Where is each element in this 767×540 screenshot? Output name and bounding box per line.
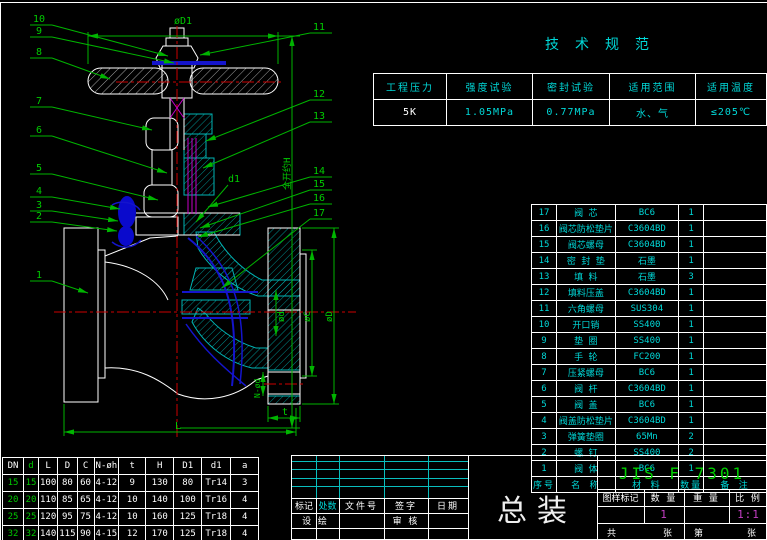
- info-header-mark: 图样标记: [597, 489, 644, 506]
- info-header-qty: 数 量: [644, 489, 684, 506]
- table-cell: 阀芯防松垫片: [557, 221, 616, 237]
- table-cell: [704, 349, 767, 365]
- table-cell: H: [146, 458, 174, 475]
- svg-text:5: 5: [36, 163, 42, 174]
- table-cell: 4: [231, 509, 259, 526]
- svg-text:11: 11: [313, 22, 325, 33]
- table-cell: 填 料: [557, 269, 616, 285]
- table-cell: a: [231, 458, 259, 475]
- sheet-total-label: 共: [607, 526, 618, 539]
- table-cell: 15: [532, 237, 557, 253]
- table-cell: 25: [24, 509, 39, 526]
- table-cell: 170: [146, 526, 174, 540]
- table-row: 6阀 杆C3604BD1: [532, 381, 767, 397]
- callout-5: 5: [30, 163, 158, 200]
- table-cell: 140: [146, 492, 174, 509]
- table-row: 202011085654-1210140100Tr164: [3, 492, 259, 509]
- table-cell: 60: [77, 475, 94, 492]
- table-row: 17阀 芯BC61: [532, 205, 767, 221]
- table-cell: 115: [58, 526, 77, 540]
- table-cell: 阀芯螺母: [557, 237, 616, 253]
- dim-label-D: øD: [325, 311, 335, 322]
- dimension-table: DNdLDCN-øhtHD1d1a 151510080604-12913080T…: [2, 457, 259, 540]
- table-cell: 90: [77, 526, 94, 540]
- table-cell: 1: [679, 381, 704, 397]
- table-cell: 密 封 垫: [557, 253, 616, 269]
- table-cell: 开口销: [557, 317, 616, 333]
- table-cell: 20: [3, 492, 24, 509]
- table-cell: 垫 圈: [557, 333, 616, 349]
- table-cell: 5: [532, 397, 557, 413]
- table-row: 14密 封 垫石墨1: [532, 253, 767, 269]
- sign-header-mark: 标记: [292, 498, 316, 513]
- table-cell: 0.77MPa: [533, 100, 610, 126]
- table-cell: 4: [532, 413, 557, 429]
- table-cell: C3604BD: [615, 237, 678, 253]
- table-cell: BC6: [615, 397, 678, 413]
- svg-text:4: 4: [36, 186, 42, 197]
- table-cell: 17: [532, 205, 557, 221]
- table-cell: 1.05MPa: [447, 100, 533, 126]
- table-row: DNdLDCN-øhtHD1d1a: [3, 458, 259, 475]
- table-cell: ≤205℃: [696, 100, 767, 126]
- table-cell: 阀盖防松垫片: [557, 413, 616, 429]
- dim-label-d: ød: [277, 311, 287, 322]
- table-cell: [704, 237, 767, 253]
- table-cell: [704, 429, 767, 445]
- table-row: 252512095754-1210160125Tr184: [3, 509, 259, 526]
- table-cell: 弹簧垫圈: [557, 429, 616, 445]
- table-cell: C3604BD: [615, 285, 678, 301]
- table-cell: 110: [39, 492, 58, 509]
- table-cell: 1: [679, 317, 704, 333]
- table-row: 12填料压盖C3604BD1: [532, 285, 767, 301]
- table-cell: 10: [119, 492, 146, 509]
- table-row: 5K1.05MPa0.77MPa水、气≤205℃: [374, 100, 767, 126]
- table-cell: Tr16: [202, 492, 231, 509]
- sheet-number-unit: 张: [747, 526, 758, 539]
- table-cell: SUS304: [615, 301, 678, 317]
- table-cell: 填料压盖: [557, 285, 616, 301]
- table-cell: 石墨: [615, 253, 678, 269]
- sign-header-date: 日期: [428, 498, 468, 513]
- table-cell: BC6: [615, 365, 678, 381]
- table-cell: 15: [3, 475, 24, 492]
- parts-list-table: 17阀 芯BC6116阀芯防松垫片C3604BD115阀芯螺母C3604BD11…: [531, 204, 767, 493]
- table-cell: 125: [174, 526, 202, 540]
- table-cell: [704, 397, 767, 413]
- table-cell: 4: [231, 526, 259, 540]
- dim-label-t: t: [282, 407, 288, 418]
- table-cell: 4: [231, 492, 259, 509]
- table-cell: C3604BD: [615, 413, 678, 429]
- table-cell: d: [24, 458, 39, 475]
- table-row: 13填 料石墨3: [532, 269, 767, 285]
- table-cell: D1: [174, 458, 202, 475]
- table-cell: 1: [679, 349, 704, 365]
- callout-11: 11: [200, 22, 332, 55]
- table-cell: 压紧螺母: [557, 365, 616, 381]
- svg-text:14: 14: [313, 166, 325, 177]
- svg-text:6: 6: [36, 125, 42, 136]
- drawing-title: 总装: [468, 484, 596, 532]
- table-cell: 140: [39, 526, 58, 540]
- table-cell: 阀 杆: [557, 381, 616, 397]
- svg-text:16: 16: [313, 193, 325, 204]
- table-cell: 六角螺母: [557, 301, 616, 317]
- sheet-total-cell: 共 张: [597, 523, 684, 540]
- table-row: 16阀芯防松垫片C3604BD1: [532, 221, 767, 237]
- callout-3: 3: [30, 200, 118, 221]
- svg-text:2: 2: [36, 211, 42, 222]
- table-cell: C3604BD: [615, 381, 678, 397]
- table-cell: [704, 253, 767, 269]
- callout-10: 10: [30, 14, 168, 56]
- table-cell: 32: [24, 526, 39, 540]
- table-cell: 120: [39, 509, 58, 526]
- table-cell: 16: [532, 221, 557, 237]
- table-cell: 1: [679, 221, 704, 237]
- table-cell: 75: [77, 509, 94, 526]
- table-cell: 1: [679, 253, 704, 269]
- sheet-total-unit: 张: [663, 526, 674, 539]
- table-cell: 4-15: [94, 526, 119, 540]
- table-cell: FC200: [615, 349, 678, 365]
- table-row: 11六角螺母SUS3041: [532, 301, 767, 317]
- svg-text:15: 15: [313, 179, 325, 190]
- table-cell: [704, 221, 767, 237]
- table-cell: 2: [679, 429, 704, 445]
- table-cell: 3: [679, 269, 704, 285]
- table-cell: 1: [679, 333, 704, 349]
- table-cell: 3: [532, 429, 557, 445]
- svg-text:10: 10: [33, 14, 45, 25]
- table-cell: 160: [146, 509, 174, 526]
- table-row: 151510080604-12913080Tr143: [3, 475, 259, 492]
- table-cell: 阀 盖: [557, 397, 616, 413]
- table-cell: [704, 269, 767, 285]
- table-row: 15阀芯螺母C3604BD1: [532, 237, 767, 253]
- table-cell: 10: [119, 509, 146, 526]
- table-cell: d1: [202, 458, 231, 475]
- table-cell: [704, 205, 767, 221]
- table-cell: BC6: [615, 205, 678, 221]
- table-cell: 15: [24, 475, 39, 492]
- table-cell: 12: [532, 285, 557, 301]
- table-cell: 11: [532, 301, 557, 317]
- svg-text:8: 8: [36, 47, 42, 58]
- table-cell: L: [39, 458, 58, 475]
- table-row: 工程压力强度试验密封试验适用范围适用温度: [374, 74, 767, 100]
- table-cell: 工程压力: [374, 74, 447, 100]
- callout-9: 9: [30, 26, 174, 63]
- svg-text:12: 12: [313, 89, 325, 100]
- table-row: 9垫 圈SS4001: [532, 333, 767, 349]
- check-label: 审 核: [384, 513, 428, 528]
- svg-text:3: 3: [36, 200, 42, 211]
- table-cell: 65: [77, 492, 94, 509]
- table-cell: 32: [3, 526, 24, 540]
- info-header-weight: 重 量: [684, 489, 729, 506]
- table-cell: 1: [679, 413, 704, 429]
- table-cell: 100: [174, 492, 202, 509]
- table-cell: [704, 333, 767, 349]
- svg-text:7: 7: [36, 96, 42, 107]
- dim-label-L: L: [175, 421, 181, 432]
- table-cell: 适用温度: [696, 74, 767, 100]
- table-row: 4阀盖防松垫片C3604BD1: [532, 413, 767, 429]
- table-cell: 65Mn: [615, 429, 678, 445]
- table-cell: 80: [58, 475, 77, 492]
- table-cell: 14: [532, 253, 557, 269]
- table-cell: t: [119, 458, 146, 475]
- table-cell: 25: [3, 509, 24, 526]
- table-cell: 3: [231, 475, 259, 492]
- table-cell: 1: [679, 397, 704, 413]
- table-cell: Tr18: [202, 526, 231, 540]
- table-cell: C3604BD: [615, 221, 678, 237]
- svg-text:1: 1: [36, 270, 42, 281]
- table-row: 3232140115904-1512170125Tr184: [3, 526, 259, 540]
- table-cell: N-øh: [94, 458, 119, 475]
- callout-13: 13: [203, 111, 332, 168]
- svg-text:13: 13: [313, 111, 325, 122]
- dim-label-d1: d1: [228, 174, 240, 185]
- info-header-scale: 比 例: [729, 489, 767, 506]
- table-cell: 20: [24, 492, 39, 509]
- table-cell: 7: [532, 365, 557, 381]
- sign-header-count: 处数: [316, 498, 339, 513]
- svg-text:9: 9: [36, 26, 42, 37]
- table-cell: [704, 285, 767, 301]
- table-row: 8手 轮FC2001: [532, 349, 767, 365]
- table-cell: 12: [119, 526, 146, 540]
- table-cell: 1: [679, 365, 704, 381]
- dim-label-D1: øD1: [174, 16, 192, 27]
- table-cell: 9: [119, 475, 146, 492]
- table-cell: 1: [679, 237, 704, 253]
- table-cell: [704, 381, 767, 397]
- table-cell: [704, 365, 767, 381]
- tech-spec-title: 技术规范: [455, 34, 755, 54]
- callout-1: 1: [30, 270, 88, 293]
- table-cell: 95: [58, 509, 77, 526]
- table-row: 10开口销SS4001: [532, 317, 767, 333]
- table-cell: 85: [58, 492, 77, 509]
- table-cell: 80: [174, 475, 202, 492]
- table-cell: 密封试验: [533, 74, 610, 100]
- table-cell: DN: [3, 458, 24, 475]
- table-cell: 手 轮: [557, 349, 616, 365]
- tech-spec-table: 工程压力强度试验密封试验适用范围适用温度5K1.05MPa0.77MPa水、气≤…: [373, 73, 767, 126]
- table-cell: 4-12: [94, 509, 119, 526]
- design-label: 设 绘: [292, 513, 339, 528]
- valve-assembly-drawing: øD1 全开约H d1 L ød øC øD: [0, 0, 370, 455]
- table-cell: 125: [174, 509, 202, 526]
- table-cell: 6: [532, 381, 557, 397]
- table-cell: 强度试验: [447, 74, 533, 100]
- dim-label-bolt-holes: N-ød: [253, 379, 262, 398]
- table-cell: 适用范围: [610, 74, 696, 100]
- table-cell: [704, 413, 767, 429]
- callout-8: 8: [30, 47, 110, 79]
- table-cell: 10: [532, 317, 557, 333]
- cad-sheet: øD1 全开约H d1 L ød øC øD: [0, 0, 767, 540]
- table-cell: 5K: [374, 100, 447, 126]
- table-cell: 4-12: [94, 475, 119, 492]
- table-cell: 8: [532, 349, 557, 365]
- table-cell: Tr18: [202, 509, 231, 526]
- table-cell: 9: [532, 333, 557, 349]
- table-row: 7压紧螺母BC61: [532, 365, 767, 381]
- scale-value: 1:1: [729, 506, 767, 523]
- table-row: 3弹簧垫圈65Mn2: [532, 429, 767, 445]
- table-cell: 水、气: [610, 100, 696, 126]
- table-cell: D: [58, 458, 77, 475]
- table-cell: 石墨: [615, 269, 678, 285]
- table-cell: 100: [39, 475, 58, 492]
- sign-header-docno: 文件号: [339, 498, 384, 513]
- sheet-number-cell: 第 张: [684, 523, 767, 540]
- table-cell: 13: [532, 269, 557, 285]
- table-cell: SS400: [615, 317, 678, 333]
- svg-text:17: 17: [313, 208, 325, 219]
- table-row: 5阀 盖BC61: [532, 397, 767, 413]
- table-cell: 1: [679, 205, 704, 221]
- qty-value: 1: [644, 506, 684, 523]
- table-cell: 阀 芯: [557, 205, 616, 221]
- title-block: 标记 处数 文件号 签字 日期 设 绘 审 核 总装 JIS F 7301 图样…: [291, 455, 767, 540]
- callout-7: 7: [30, 96, 152, 130]
- sheet-number-label: 第: [694, 526, 705, 539]
- table-cell: [704, 317, 767, 333]
- table-cell: [704, 301, 767, 317]
- table-cell: 1: [679, 285, 704, 301]
- table-cell: 1: [679, 301, 704, 317]
- table-cell: C: [77, 458, 94, 475]
- dim-label-C: øC: [303, 311, 313, 322]
- table-cell: 4-12: [94, 492, 119, 509]
- standard-number: JIS F 7301: [597, 458, 767, 488]
- table-cell: Tr14: [202, 475, 231, 492]
- callout-4: 4: [30, 186, 120, 209]
- table-cell: 130: [146, 475, 174, 492]
- table-cell: SS400: [615, 333, 678, 349]
- sign-header-signature: 签字: [384, 498, 428, 513]
